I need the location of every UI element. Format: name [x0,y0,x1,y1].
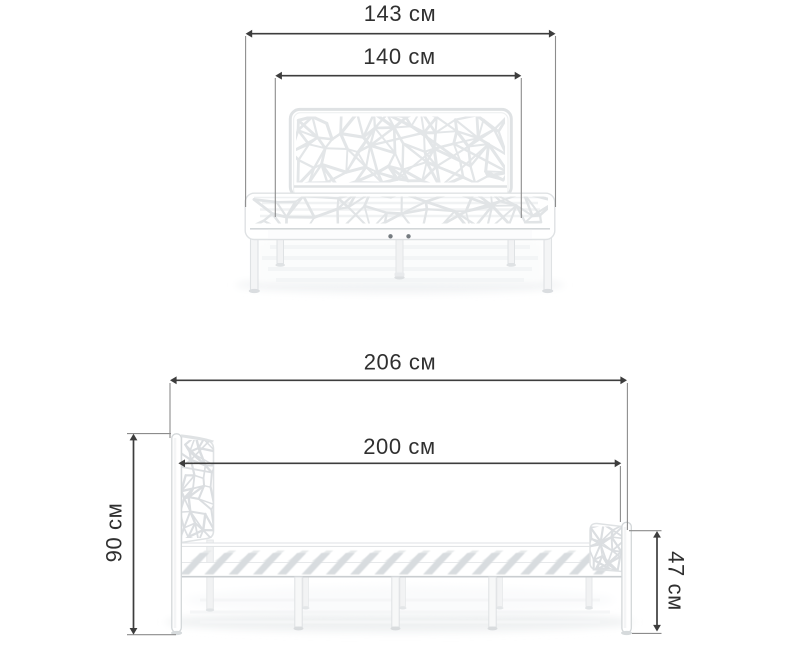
svg-text:206 см: 206 см [364,349,437,374]
svg-text:143 см: 143 см [364,1,437,26]
svg-text:90 см: 90 см [102,503,127,563]
svg-text:140 см: 140 см [363,44,436,69]
svg-text:200 см: 200 см [363,434,436,459]
svg-text:47 см: 47 см [664,551,689,611]
